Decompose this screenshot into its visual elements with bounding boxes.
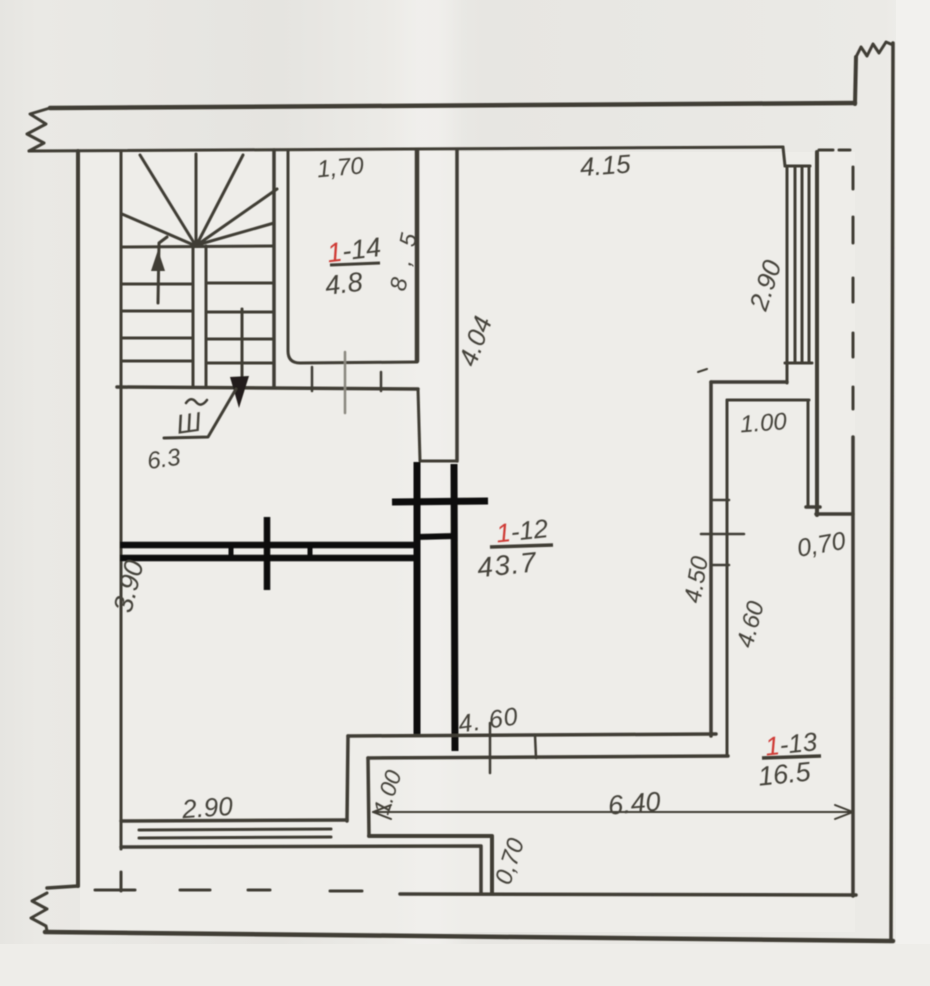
- svg-text:16.5: 16.5: [757, 756, 813, 791]
- svg-text:1-12: 1-12: [495, 513, 550, 548]
- svg-text:4.15: 4.15: [579, 149, 632, 182]
- svg-text:6.3: 6.3: [145, 444, 182, 475]
- svg-text:Ш: Ш: [174, 407, 203, 440]
- svg-text:2.90: 2.90: [180, 791, 234, 825]
- svg-text:1.00: 1.00: [739, 408, 788, 438]
- svg-text:4.8: 4.8: [323, 267, 364, 301]
- svg-text:43.7: 43.7: [476, 546, 539, 583]
- svg-text:6.40: 6.40: [607, 786, 662, 820]
- svg-text:1,70: 1,70: [316, 152, 366, 183]
